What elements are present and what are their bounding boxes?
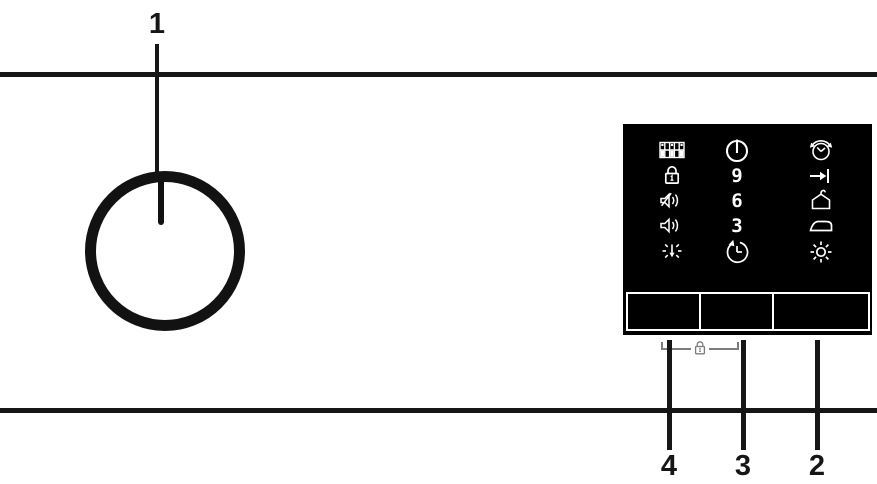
sun-icon [807,238,835,266]
program-knob[interactable] [85,171,245,331]
iron-icon [807,212,835,240]
callout-line-4 [667,340,672,450]
callout-line-2 [815,340,820,450]
delay-hour-9: 9 [722,165,752,187]
callout-label-1: 1 [142,10,172,39]
bracket-right-segment [709,348,739,350]
time-saver-clock-icon [807,136,835,164]
delay-hour-3: 3 [722,215,752,237]
callout-label-4: 4 [654,452,684,481]
bracket-right-tick [737,342,739,350]
hanger-icon [807,187,835,215]
callout-line-3 [741,340,746,450]
panel-top-edge-line [0,72,877,77]
button-left[interactable] [626,292,701,331]
knob-pointer-mark [158,172,164,225]
child-lock-key-icon [691,339,709,357]
control-panel: 9 6 3 [623,124,872,335]
button-right[interactable] [772,292,870,331]
power-icon [723,136,751,164]
sound-off-icon [658,187,686,215]
child-lock-icon [658,162,686,190]
arrow-to-end-icon [807,162,835,190]
callout-label-3: 3 [728,452,758,481]
callout-line-1 [155,44,159,172]
bracket-left-segment [661,348,691,350]
sound-on-icon [658,212,686,240]
delay-hour-6: 6 [722,190,752,212]
display-matrix-icon [658,136,686,164]
drum-light-icon [658,238,686,266]
delay-start-clock-icon [723,238,751,266]
callout-label-2: 2 [802,452,832,481]
button-middle[interactable] [699,292,774,331]
diagram-canvas: 1 [0,0,877,484]
